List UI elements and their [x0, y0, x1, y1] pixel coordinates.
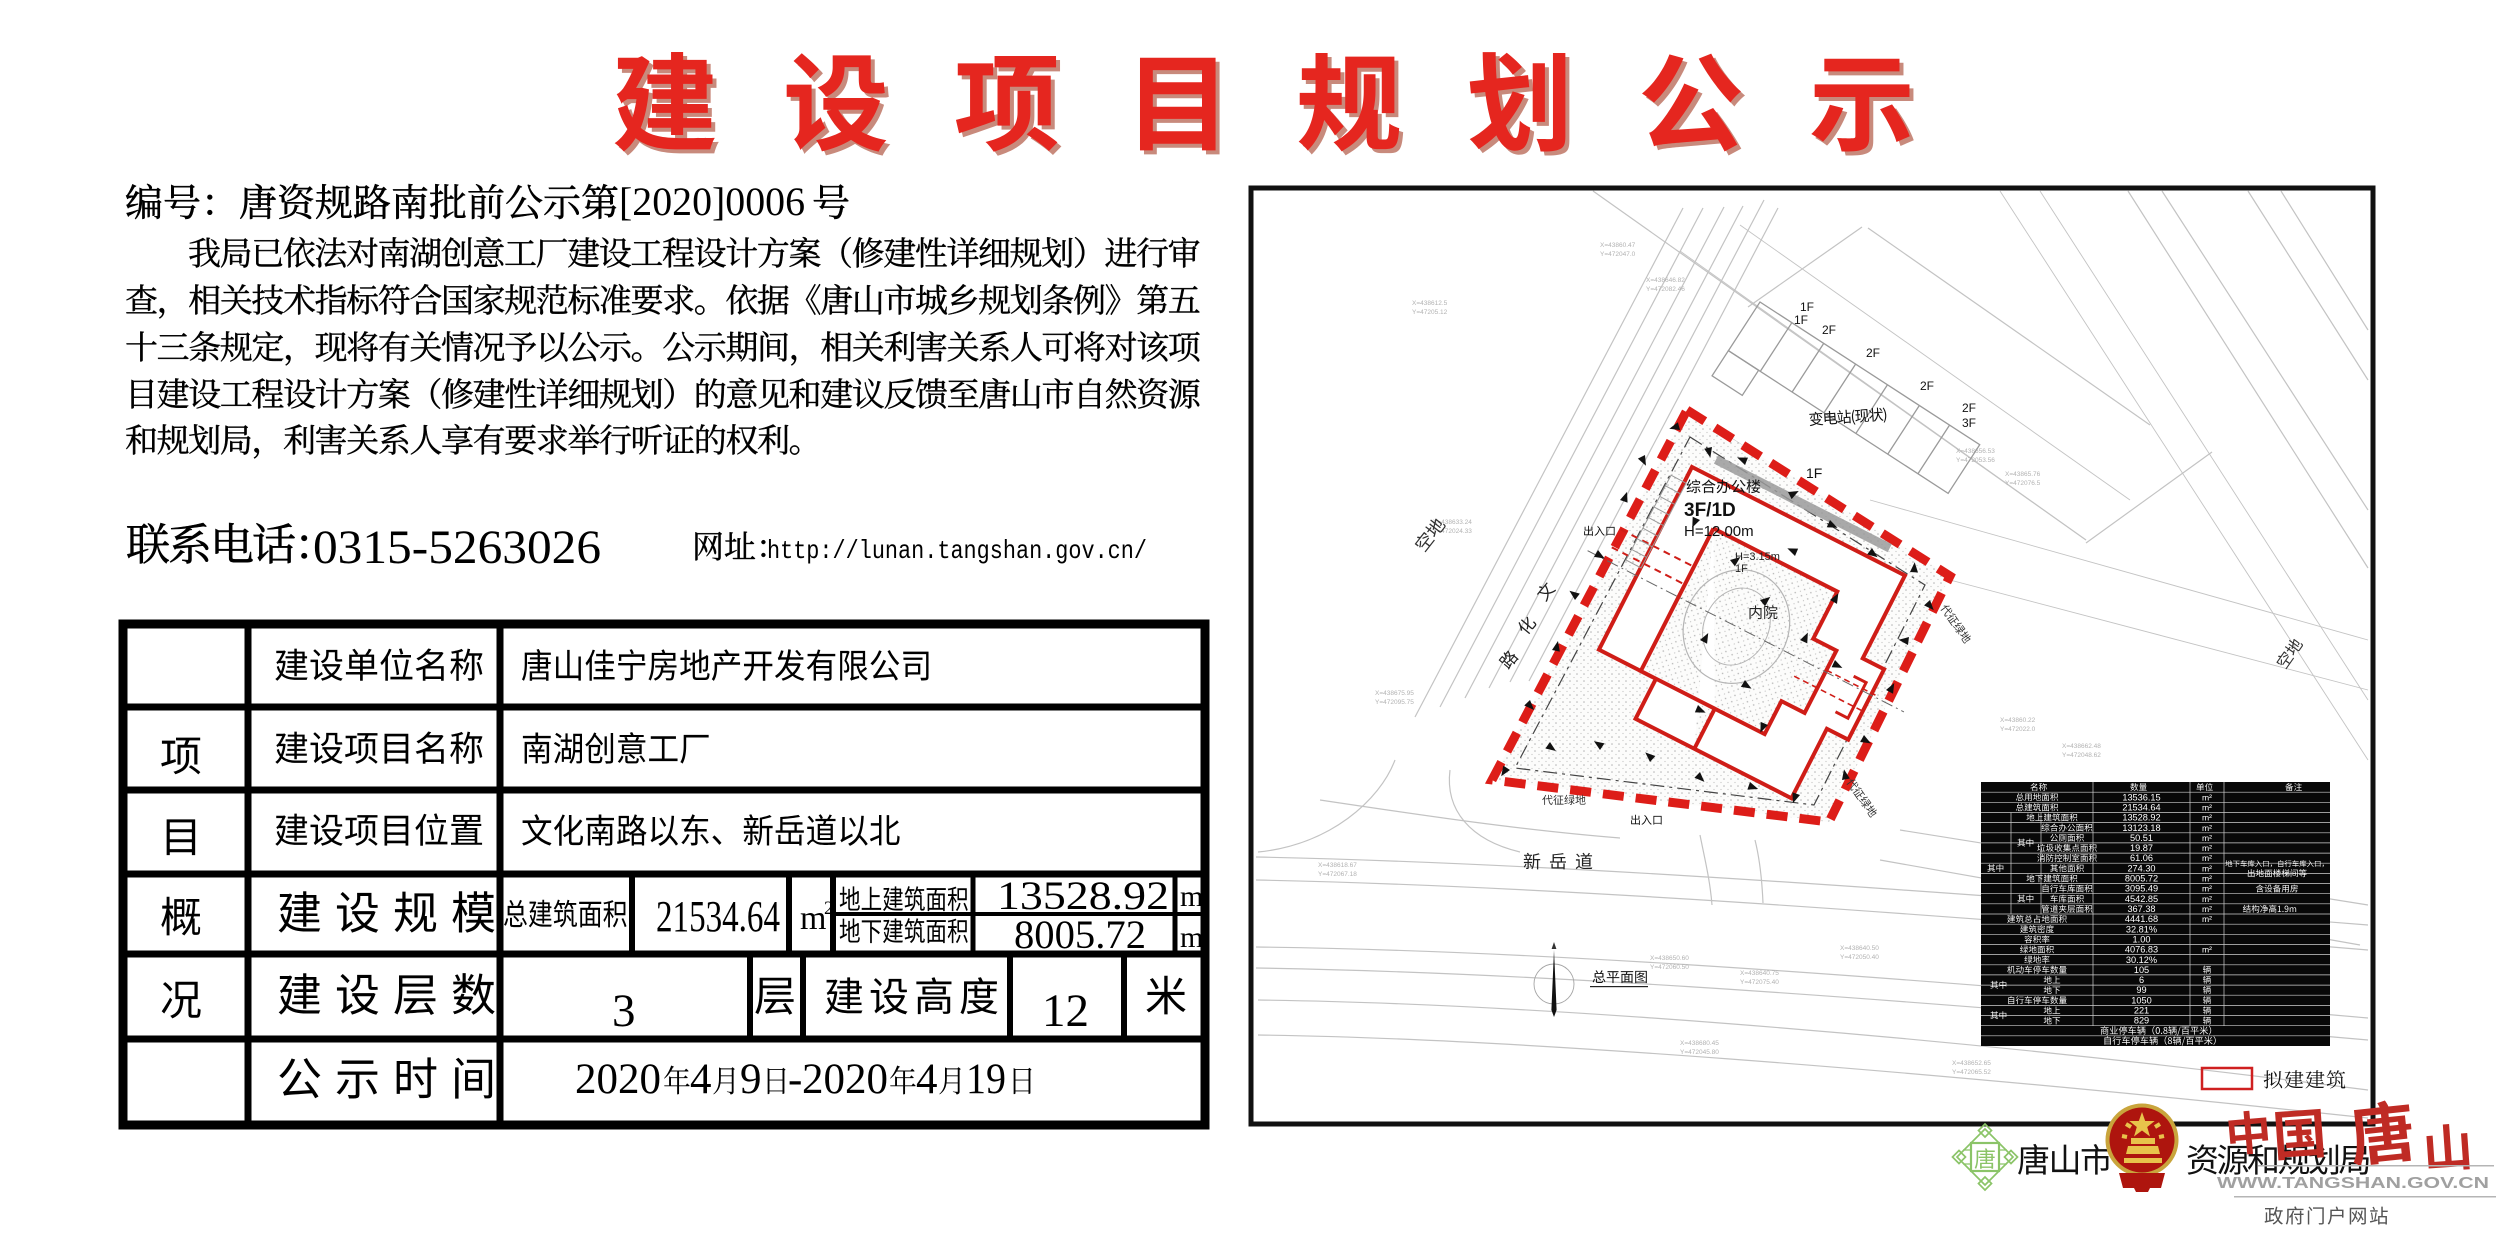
svg-text:8005.72: 8005.72: [2125, 874, 2158, 884]
svg-text:Y=472047.0: Y=472047.0: [1600, 251, 1636, 258]
svg-text:61.06: 61.06: [2130, 853, 2153, 863]
svg-text:1.00: 1.00: [2133, 935, 2151, 945]
svg-text:-: -: [788, 1056, 802, 1103]
svg-text:1F: 1F: [1800, 300, 1814, 314]
svg-text:367.38: 367.38: [2127, 904, 2155, 914]
svg-text:m²: m²: [2202, 833, 2212, 843]
svg-text:m²: m²: [2202, 904, 2212, 914]
svg-text:m²: m²: [2202, 894, 2212, 904]
svg-text:m: m: [1180, 921, 1203, 954]
svg-text:X=438640.50: X=438640.50: [1840, 945, 1879, 952]
svg-text:4076.83: 4076.83: [2125, 945, 2158, 955]
svg-text:2: 2: [1201, 919, 1210, 938]
svg-text:Y=472060.50: Y=472060.50: [1650, 964, 1689, 971]
svg-text:13123.18: 13123.18: [2122, 823, 2160, 833]
svg-text:m²: m²: [2202, 813, 2212, 823]
svg-text:X=438646.82: X=438646.82: [1646, 277, 1685, 284]
svg-text:8005.72: 8005.72: [1014, 912, 1146, 957]
svg-text:http://lunan.tangshan.gov.cn/: http://lunan.tangshan.gov.cn/: [767, 536, 1147, 566]
svg-text:30.12%: 30.12%: [2126, 955, 2157, 965]
svg-text:Y=472076.5: Y=472076.5: [2005, 480, 2041, 487]
svg-text:X=438680.45: X=438680.45: [1680, 1040, 1719, 1047]
svg-text:Y=472053.56: Y=472053.56: [1956, 457, 1995, 464]
svg-text:m: m: [800, 900, 826, 937]
svg-text:829: 829: [2134, 1016, 2149, 1026]
svg-text:13528.92: 13528.92: [2122, 813, 2160, 823]
svg-text:X=438633.24: X=438633.24: [1433, 519, 1472, 526]
svg-text:6: 6: [2139, 975, 2144, 985]
svg-text:4: 4: [916, 1056, 938, 1103]
svg-text:2020: 2020: [575, 1056, 661, 1103]
svg-text:4542.85: 4542.85: [2125, 894, 2158, 904]
svg-text:Y=472082.46: Y=472082.46: [1646, 286, 1685, 293]
svg-text:21534.64: 21534.64: [656, 892, 780, 941]
svg-text:m²: m²: [2202, 884, 2212, 894]
svg-text:m²: m²: [2202, 863, 2212, 873]
svg-text:3F/1D: 3F/1D: [1684, 500, 1736, 521]
svg-text:2: 2: [824, 898, 834, 919]
svg-text:X=43865.76: X=43865.76: [2005, 471, 2041, 478]
svg-text:13536.15: 13536.15: [2122, 792, 2160, 802]
svg-text:221: 221: [2134, 1006, 2149, 1016]
svg-text:X=438675.95: X=438675.95: [1375, 690, 1414, 697]
svg-text:32.81%: 32.81%: [2126, 924, 2157, 934]
svg-text:3F: 3F: [1962, 416, 1976, 430]
svg-text:50.51: 50.51: [2130, 833, 2153, 843]
svg-text:m²: m²: [2202, 843, 2212, 853]
svg-text:1050: 1050: [2131, 995, 2151, 1005]
svg-text:9: 9: [740, 1056, 762, 1103]
svg-text:m²: m²: [2202, 803, 2212, 813]
svg-text:3095.49: 3095.49: [2125, 884, 2158, 894]
svg-text:X=438652.65: X=438652.65: [1952, 1060, 1991, 1067]
svg-text:Y=472045.80: Y=472045.80: [1680, 1049, 1719, 1056]
svg-text:19.87: 19.87: [2130, 843, 2153, 853]
svg-text:X=438618.67: X=438618.67: [1318, 862, 1357, 869]
svg-text:m²: m²: [2202, 823, 2212, 833]
svg-text:99: 99: [2136, 985, 2146, 995]
svg-text:1F: 1F: [1794, 313, 1808, 327]
svg-text:Y=472022.0: Y=472022.0: [2000, 726, 2036, 733]
svg-text:X=438612.5: X=438612.5: [1412, 300, 1448, 307]
svg-text:X=43860.22: X=43860.22: [2000, 717, 2036, 724]
svg-text:H=12.00m: H=12.00m: [1684, 523, 1754, 540]
svg-text:2F: 2F: [1822, 323, 1836, 337]
svg-text:3: 3: [612, 985, 636, 1037]
svg-text:m: m: [1180, 880, 1203, 913]
svg-text:Y=472067.18: Y=472067.18: [1318, 871, 1357, 878]
svg-text:1F: 1F: [1806, 465, 1822, 481]
svg-text:4: 4: [690, 1056, 712, 1103]
svg-text:Y=472048.62: Y=472048.62: [2062, 752, 2101, 759]
svg-text:m²: m²: [2202, 874, 2212, 884]
svg-text:274.30: 274.30: [2127, 863, 2155, 873]
svg-text:12: 12: [1042, 985, 1089, 1037]
svg-text:X=43860.47: X=43860.47: [1600, 242, 1636, 249]
svg-text:105: 105: [2134, 965, 2149, 975]
svg-text:2F: 2F: [1962, 401, 1976, 415]
svg-text:X=438650.60: X=438650.60: [1650, 955, 1689, 962]
svg-text:2F: 2F: [1866, 346, 1880, 360]
svg-text:Y=472075.40: Y=472075.40: [1740, 979, 1779, 986]
svg-text:Y=472065.52: Y=472065.52: [1952, 1069, 1991, 1076]
svg-text:2: 2: [1201, 878, 1210, 897]
svg-text:m²: m²: [2202, 945, 2212, 955]
svg-text:X=438640.75: X=438640.75: [1740, 970, 1779, 977]
svg-text:Y=47205.12: Y=47205.12: [1412, 309, 1448, 316]
svg-text:[2020]0006: [2020]0006: [619, 179, 805, 224]
svg-text:1F: 1F: [1735, 563, 1748, 575]
svg-text:m²: m²: [2202, 853, 2212, 863]
svg-text:Y=472095.75: Y=472095.75: [1375, 699, 1414, 706]
svg-text:19: 19: [966, 1056, 1006, 1103]
svg-text:Y=472050.40: Y=472050.40: [1840, 954, 1879, 961]
svg-text:21534.64: 21534.64: [2122, 803, 2160, 813]
svg-text:2F: 2F: [1920, 379, 1934, 393]
svg-text:2020: 2020: [802, 1056, 888, 1103]
svg-text:m²: m²: [2202, 792, 2212, 802]
svg-text:X=438662.48: X=438662.48: [2062, 743, 2101, 750]
svg-text:0315-5263026: 0315-5263026: [313, 521, 601, 574]
svg-text:H=3.15m: H=3.15m: [1735, 551, 1780, 563]
svg-text:4441.68: 4441.68: [2125, 914, 2158, 924]
svg-text:m²: m²: [2202, 914, 2212, 924]
svg-text:WWW.TANGSHAN.GOV.CN: WWW.TANGSHAN.GOV.CN: [2217, 1175, 2489, 1192]
